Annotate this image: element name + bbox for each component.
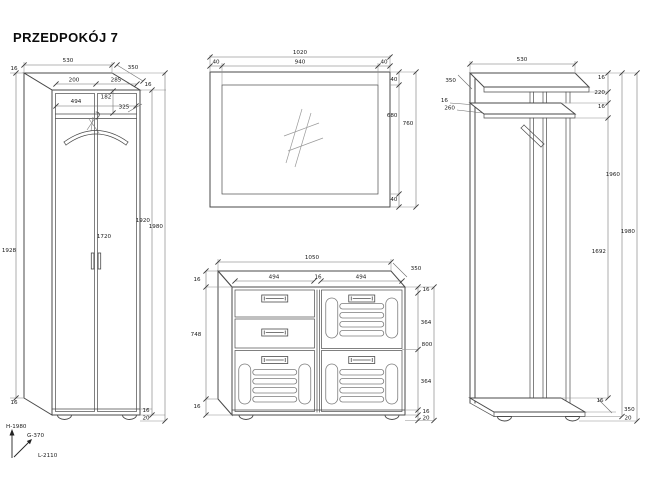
dim-wardrobe-door-height: 1720 xyxy=(97,234,112,240)
cabinet-vent-left xyxy=(239,364,311,404)
dim-cabinet-width: 1050 xyxy=(305,255,320,261)
rack-base xyxy=(470,398,585,412)
cabinet-drawing xyxy=(218,271,405,420)
wardrobe-foot-right xyxy=(123,415,137,420)
technical-drawing-page: PRZEDPOKÓJ 7 xyxy=(0,0,648,486)
cabinet-foot-left xyxy=(239,415,253,420)
dim-wardrobe-width: 530 xyxy=(63,58,74,64)
dim-cabinet-total-height: 800 xyxy=(422,342,433,348)
wardrobe-handle-right xyxy=(98,253,101,269)
wardrobe-handle-left xyxy=(91,253,94,269)
dim-mirror-width: 1020 xyxy=(293,50,308,56)
dim-cabinet-divider: 16 xyxy=(314,275,322,281)
cabinet-top-face xyxy=(218,271,405,287)
dim-rack-feet: 20 xyxy=(624,416,632,422)
dim-cabinet-feet: 20 xyxy=(422,416,430,422)
dim-wardrobe-side-thickness: 16 xyxy=(10,66,18,72)
dim-wardrobe-top-gap: 182 xyxy=(101,95,112,101)
dim-cabinet-depth: 350 xyxy=(411,266,422,272)
dim-wardrobe-top-thickness: 16 xyxy=(144,82,152,88)
dim-mirror-frame-right: 40 xyxy=(380,60,388,66)
cabinet-foot-right xyxy=(385,415,399,420)
rack-top-shelf xyxy=(470,73,589,87)
dim-rack-lower-shelf-depth: 260 xyxy=(444,106,455,112)
dim-mirror-glass-height: 680 xyxy=(387,113,398,119)
drawing-canvas: PRZEDPOKÓJ 7 xyxy=(0,0,648,486)
rack-foot-right xyxy=(566,417,580,422)
cabinet-vent-bottom-right xyxy=(326,364,398,404)
wardrobe-front-face xyxy=(52,90,140,415)
cabinet-handle-door-tr xyxy=(349,295,375,302)
dim-cabinet-upper-door-height: 364 xyxy=(421,320,432,326)
legend-axes: H-1980 G-370 L-2110 xyxy=(6,424,58,459)
dim-cabinet-left-bottom: 16 xyxy=(193,404,201,410)
dim-rack-shelf-depth: 350 xyxy=(445,78,456,84)
legend-height: H-1980 xyxy=(6,424,27,430)
dim-wardrobe-left-door: 200 xyxy=(69,78,80,84)
dim-cabinet-lower-door-height: 364 xyxy=(421,379,432,385)
dim-rack-base-depth: 350 xyxy=(624,407,635,413)
dim-wardrobe-total-height: 1980 xyxy=(149,224,164,230)
wardrobe-foot-left xyxy=(58,415,72,420)
dim-mirror-frame-bottom: 40 xyxy=(390,197,398,203)
dim-rack-body-height: 1960 xyxy=(606,172,621,178)
legend-length: L-2110 xyxy=(38,453,58,459)
mirror-drawing xyxy=(210,72,390,207)
rack-drawing xyxy=(470,73,589,421)
dim-cabinet-right-bottom: 16 xyxy=(422,409,430,415)
dim-cabinet-right-door-width: 494 xyxy=(356,275,367,281)
dim-cabinet-left-top: 16 xyxy=(193,277,201,283)
cabinet-side-face xyxy=(218,271,232,415)
page-title: PRZEDPOKÓJ 7 xyxy=(13,30,118,45)
dim-rack-lower-shelf-thickness-left: 16 xyxy=(441,98,449,104)
cabinet-handle-drawer2 xyxy=(262,329,288,336)
dim-mirror-total-height: 760 xyxy=(403,121,414,127)
dim-wardrobe-shelf-depth: 325 xyxy=(119,105,130,111)
dim-mirror-glass-width: 940 xyxy=(295,60,306,66)
wardrobe-drawing xyxy=(24,73,140,420)
dim-rack-width: 530 xyxy=(517,57,528,63)
dim-cabinet-left-door-width: 494 xyxy=(269,275,280,281)
dim-wardrobe-depth: 350 xyxy=(128,65,139,71)
dim-mirror-frame-top: 40 xyxy=(390,77,398,83)
mirror-frame xyxy=(210,72,390,207)
dim-rack-base-thickness: 16 xyxy=(596,398,604,404)
rack-hook-bar xyxy=(521,125,544,147)
legend-depth: G-370 xyxy=(27,433,44,439)
dim-cabinet-inner-height: 748 xyxy=(191,332,202,338)
dim-wardrobe-shelf-width: 494 xyxy=(71,99,82,105)
dim-rack-post-height: 1692 xyxy=(592,249,606,255)
dim-wardrobe-bottom: 16 xyxy=(142,408,150,414)
dim-wardrobe-carcass-height: 1928 xyxy=(2,248,17,254)
rack-lower-shelf xyxy=(470,103,575,114)
dim-rack-top-shelf-thickness: 16 xyxy=(598,75,606,81)
wardrobe-side-face xyxy=(24,73,52,415)
dim-rack-total-height: 1980 xyxy=(621,229,636,235)
rack-foot-left xyxy=(498,417,512,422)
dim-mirror-frame-left: 40 xyxy=(212,60,220,66)
cabinet-vent-top-right xyxy=(326,298,398,338)
dim-wardrobe-right-door: 285 xyxy=(111,78,122,84)
dim-wardrobe-side-bottom: 16 xyxy=(10,400,18,406)
cabinet-handle-drawer1 xyxy=(262,295,288,302)
dim-rack-shelf-gap: 220 xyxy=(594,90,605,96)
dim-wardrobe-feet: 20 xyxy=(142,416,150,422)
cabinet-handle-door-br xyxy=(349,357,375,364)
cabinet-handle-door-left xyxy=(262,357,288,364)
rack-posts xyxy=(530,92,570,403)
dim-cabinet-right-top: 16 xyxy=(422,287,430,293)
dim-rack-lower-shelf-thickness: 16 xyxy=(598,104,606,110)
